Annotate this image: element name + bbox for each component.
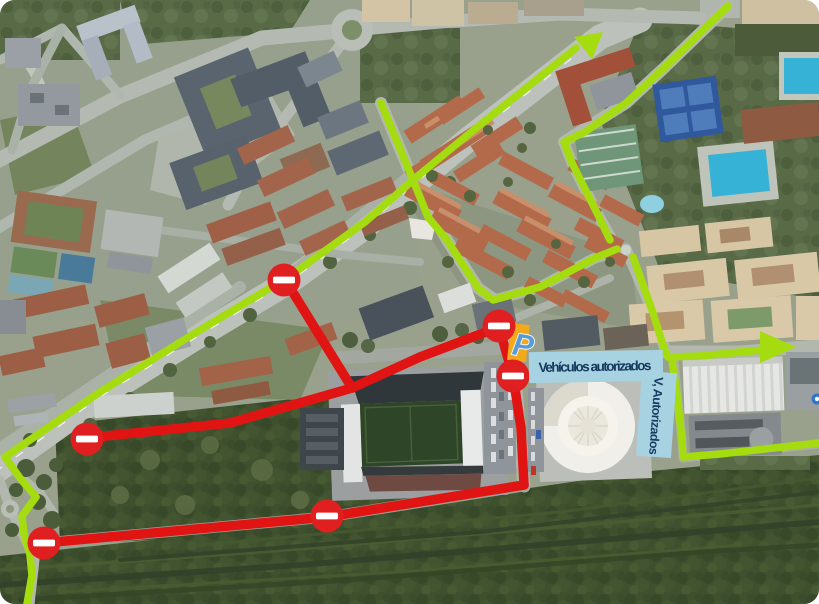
svg-text:Vehículos autorizados: Vehículos autorizados: [538, 358, 651, 375]
